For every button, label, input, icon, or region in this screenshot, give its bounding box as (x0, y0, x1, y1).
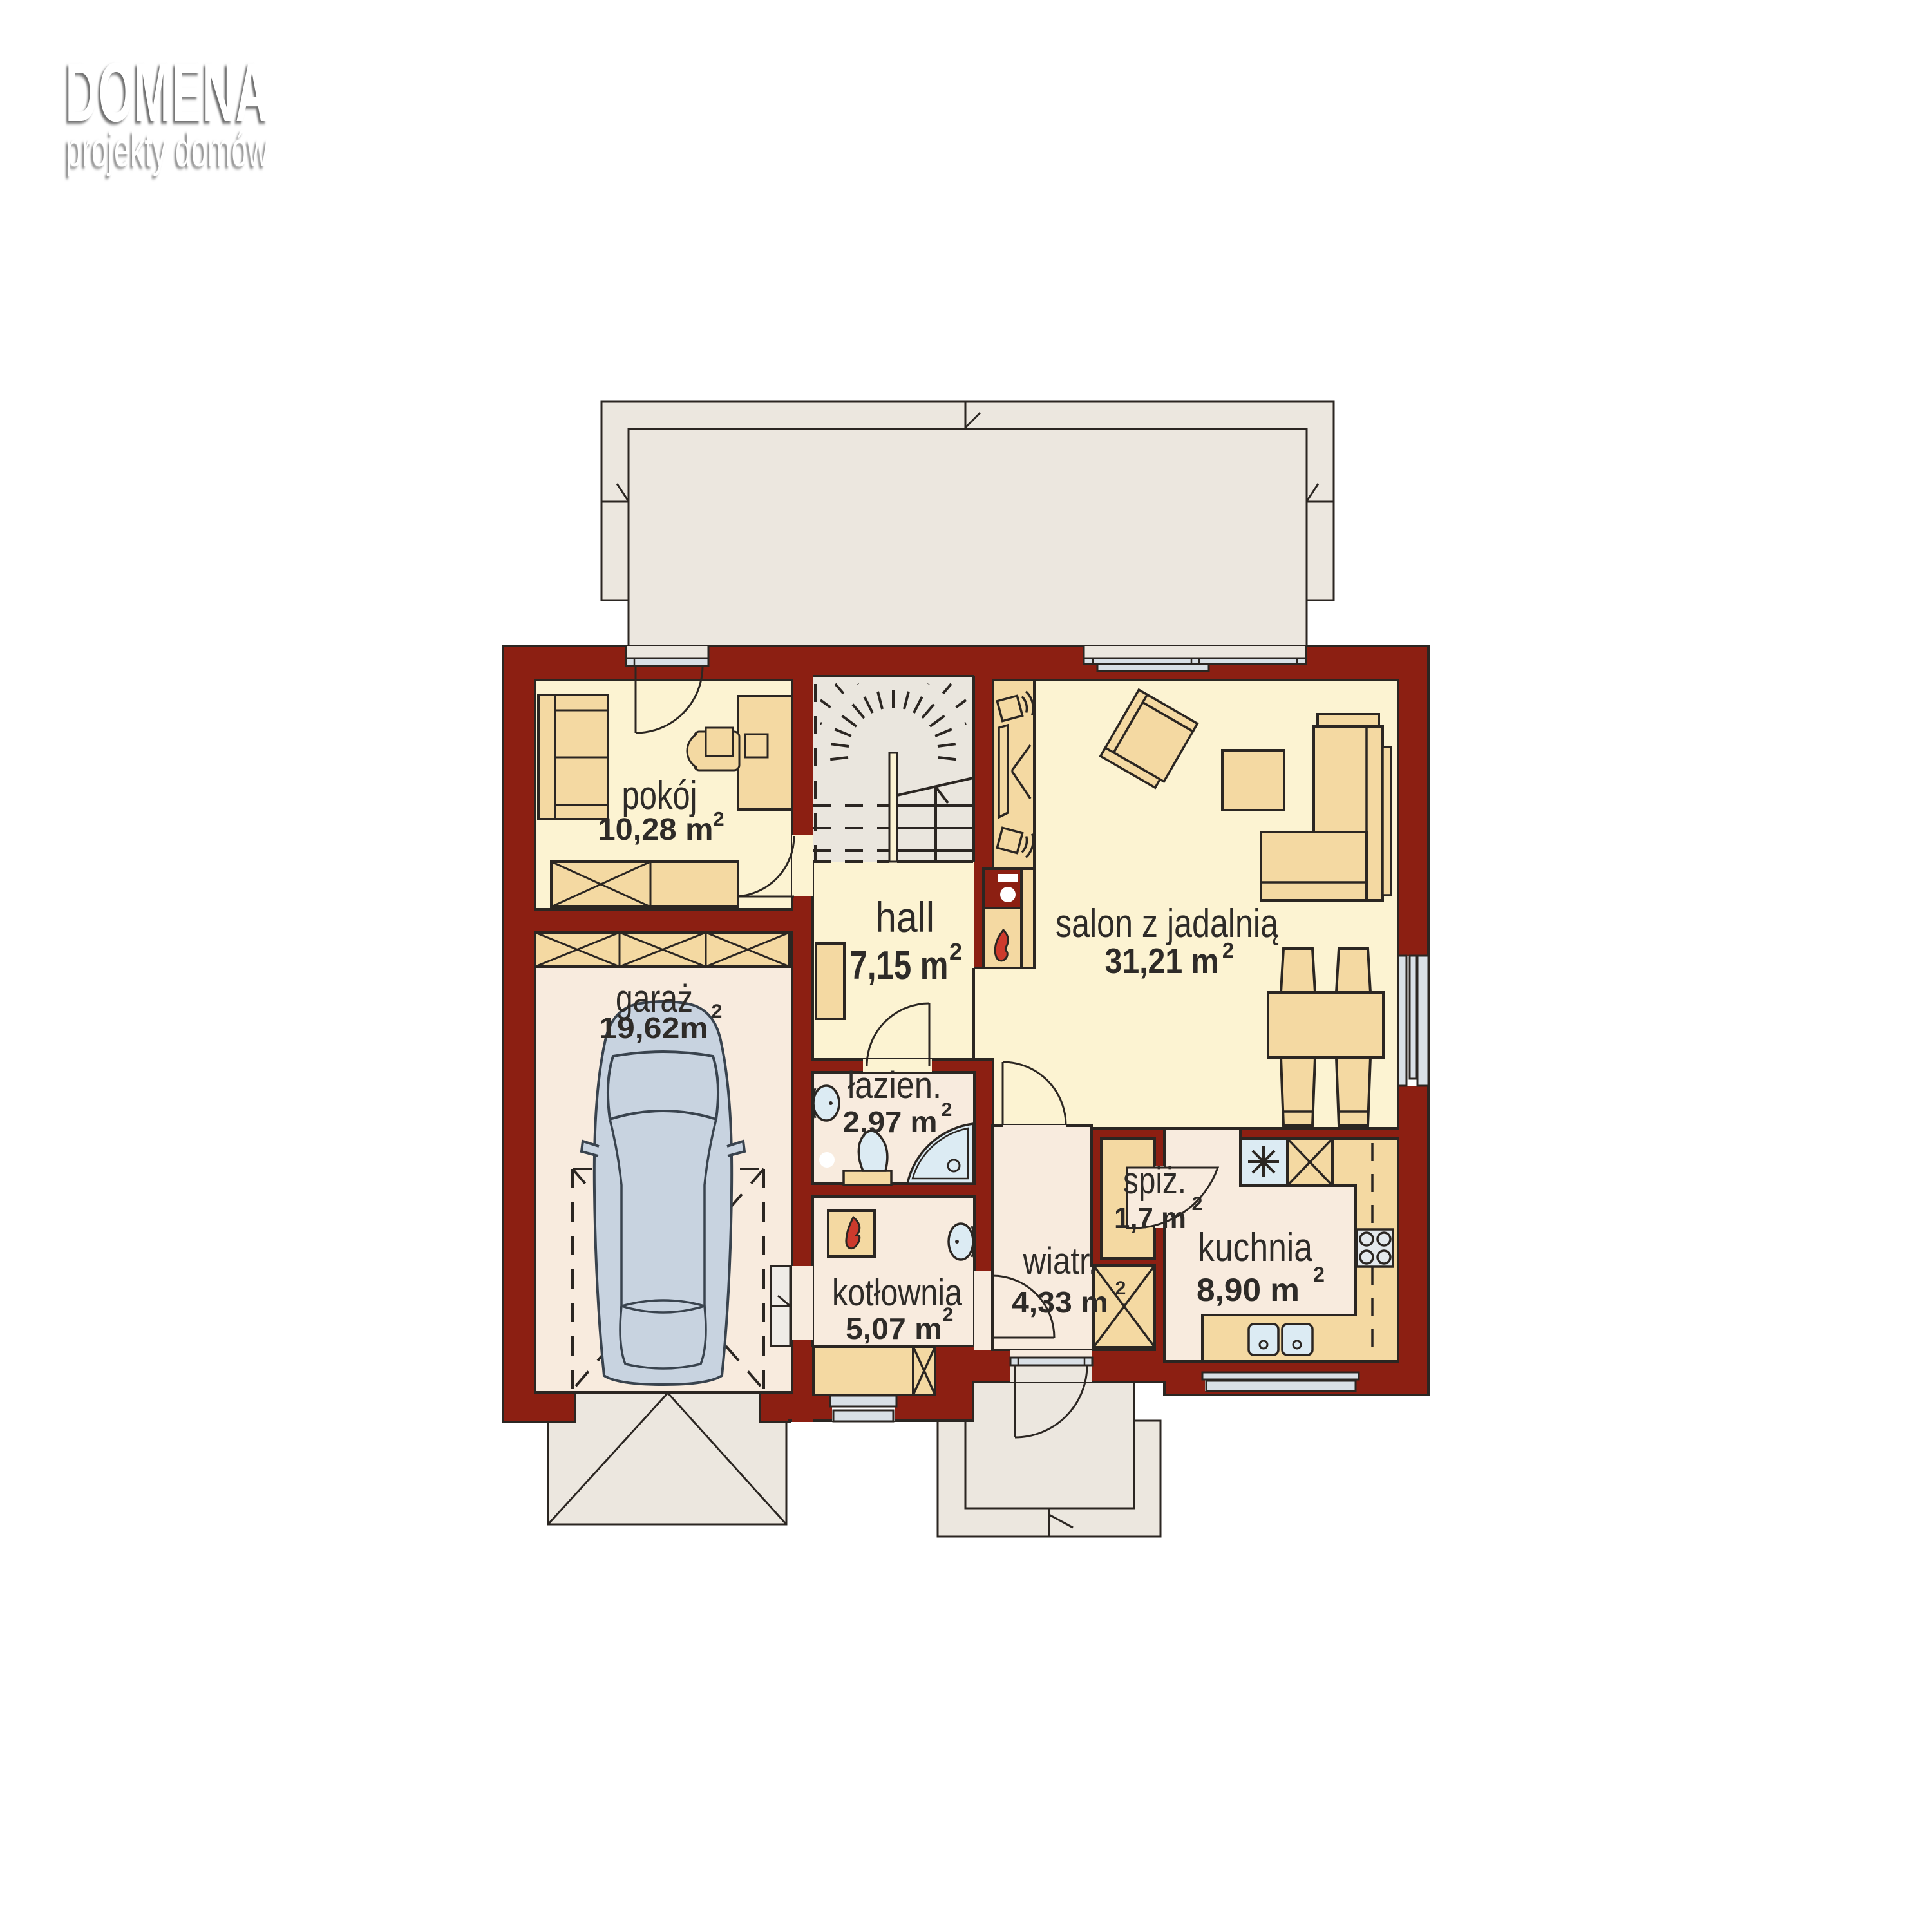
svg-text:2: 2 (1192, 1193, 1203, 1215)
svg-text:spiż.: spiż. (1123, 1160, 1186, 1202)
svg-text:pokój: pokój (622, 773, 697, 818)
svg-text:4,33 m: 4,33 m (1012, 1285, 1108, 1319)
svg-text:2: 2 (949, 938, 962, 965)
svg-text:salon z jadalnią: salon z jadalnią (1056, 902, 1278, 946)
svg-text:2: 2 (942, 1099, 952, 1121)
svg-text:2: 2 (1115, 1278, 1126, 1299)
svg-text:łazien.: łazien. (848, 1065, 942, 1106)
svg-text:hall: hall (875, 893, 934, 941)
svg-text:5,07 m: 5,07 m (846, 1312, 942, 1345)
svg-text:2: 2 (713, 808, 724, 830)
svg-text:projekty domów: projekty domów (66, 123, 269, 177)
svg-text:31,21 m: 31,21 m (1105, 941, 1219, 981)
svg-text:1,7 m: 1,7 m (1114, 1201, 1186, 1235)
svg-text:19,62m: 19,62m (599, 1011, 708, 1045)
svg-text:10,28 m: 10,28 m (598, 813, 714, 847)
svg-text:7,15 m: 7,15 m (850, 943, 949, 988)
svg-text:2: 2 (1222, 938, 1234, 962)
svg-text:2,97 m: 2,97 m (843, 1105, 938, 1139)
svg-text:kuchnia: kuchnia (1198, 1226, 1312, 1270)
svg-text:2: 2 (1313, 1263, 1325, 1286)
svg-text:2: 2 (943, 1304, 954, 1325)
svg-text:8,90 m: 8,90 m (1197, 1272, 1300, 1308)
svg-text:2: 2 (712, 1001, 723, 1022)
svg-text:wiatr.: wiatr. (1023, 1240, 1097, 1282)
